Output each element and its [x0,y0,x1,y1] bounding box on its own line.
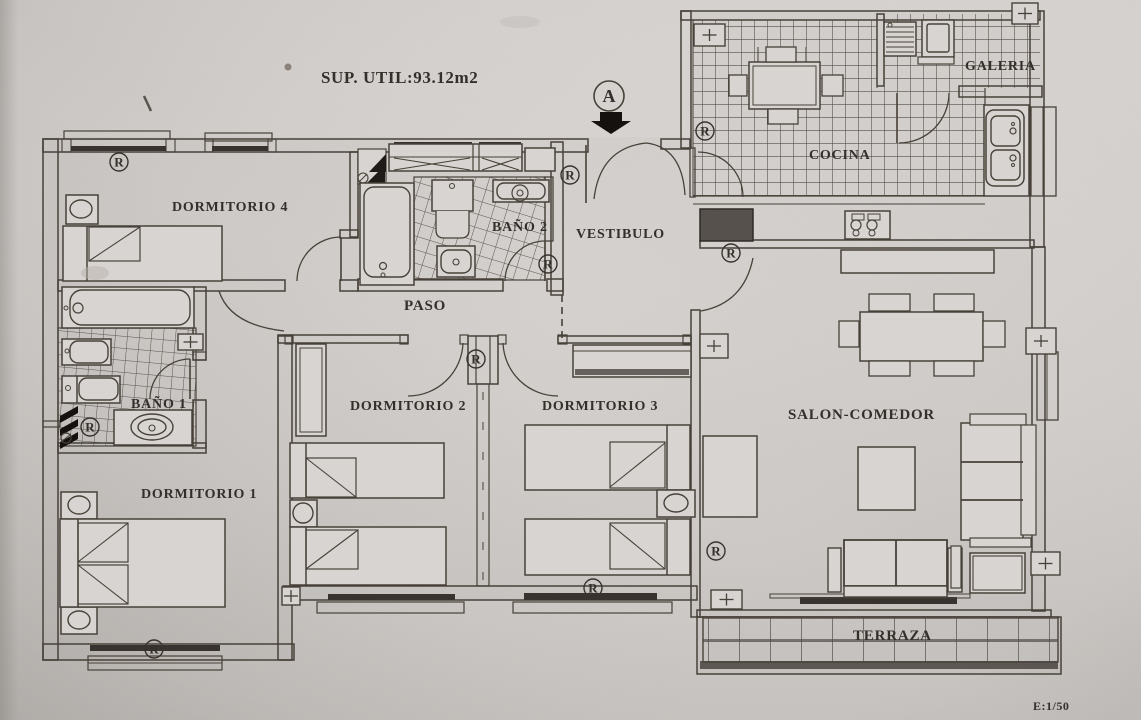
svg-text:R: R [543,257,553,272]
svg-text:A: A [603,86,616,106]
svg-text:SUP. UTIL:93.12m2: SUP. UTIL:93.12m2 [321,68,478,87]
svg-text:R: R [149,642,159,657]
svg-text:R: R [85,420,95,435]
svg-text:BAÑO 2: BAÑO 2 [492,217,548,235]
svg-text:R: R [700,124,710,139]
svg-text:BAÑO 1: BAÑO 1 [131,394,187,412]
svg-text:E:1/50: E:1/50 [1033,699,1069,713]
svg-text:VESTIBULO: VESTIBULO [576,227,665,242]
svg-text:R: R [711,544,721,559]
svg-text:SALON-COMEDOR: SALON-COMEDOR [788,407,935,423]
svg-text:R: R [726,246,736,261]
svg-text:TERRAZA: TERRAZA [853,628,932,644]
svg-text:COCINA: COCINA [809,148,871,163]
svg-text:GALERIA: GALERIA [965,59,1036,74]
svg-text:R: R [471,352,481,367]
svg-text:DORMITORIO 2: DORMITORIO 2 [350,399,466,414]
svg-text:R: R [114,155,124,170]
svg-text:PASO: PASO [404,298,446,314]
svg-text:DORMITORIO 1: DORMITORIO 1 [141,487,257,502]
svg-text:R: R [565,168,575,183]
svg-text:DORMITORIO 3: DORMITORIO 3 [542,399,658,414]
svg-text:R: R [588,581,598,596]
svg-text:DORMITORIO 4: DORMITORIO 4 [172,200,288,215]
